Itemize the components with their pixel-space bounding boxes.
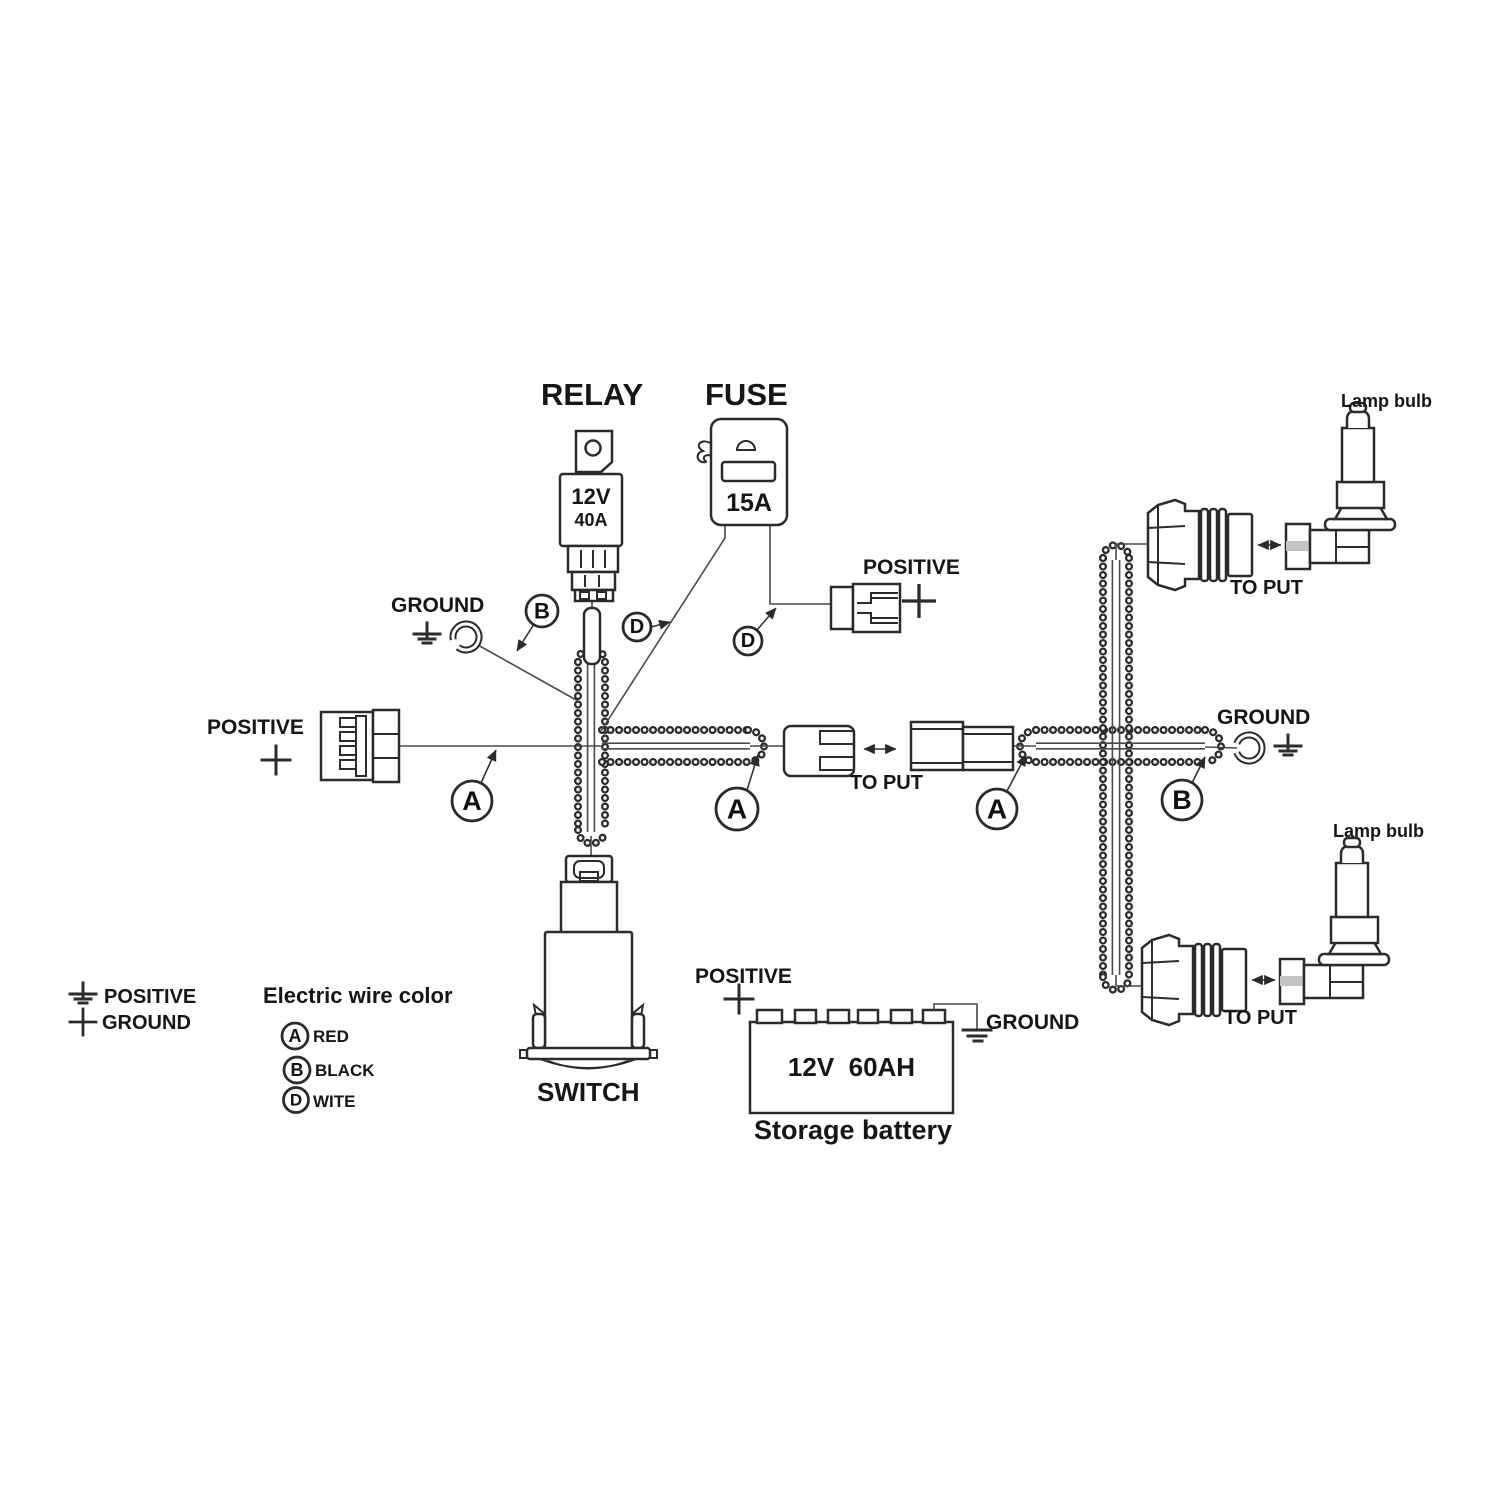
- wire-mark-d-right-letter: D: [741, 630, 755, 652]
- legend-title: Electric wire color: [263, 985, 453, 1007]
- to-put-label-bottom: TO PUT: [1224, 1008, 1297, 1028]
- relay-title: RELAY: [541, 379, 643, 410]
- diagram-artwork: A A A B B D D A B D: [0, 0, 1500, 1500]
- legend-color-wite: WITE: [313, 1093, 356, 1110]
- positive-label-left: POSITIVE: [207, 717, 304, 738]
- wire-mark-a-right-letter: A: [987, 794, 1007, 825]
- ground-label-relay: GROUND: [391, 595, 484, 616]
- battery-ground-label: GROUND: [986, 1012, 1079, 1033]
- positive-connector-left: [321, 710, 399, 782]
- lamp-bulb-label-top: Lamp bulb: [1341, 392, 1432, 410]
- harness-braid-center-horizontal: [602, 730, 764, 762]
- battery-name: Storage battery: [754, 1117, 952, 1144]
- wire-mark-a-middle-letter: A: [727, 794, 747, 825]
- legend-mark-d-letter: D: [290, 1091, 302, 1110]
- fuse-title: FUSE: [705, 379, 788, 410]
- to-put-label-middle: TO PUT: [850, 773, 923, 793]
- ground-symbol-right: [1275, 735, 1301, 755]
- relay-blade-hole: [586, 441, 601, 456]
- ground-label-right: GROUND: [1217, 707, 1310, 728]
- legend-mark-a-letter: A: [289, 1026, 302, 1046]
- legend-mark-b-letter: B: [291, 1060, 304, 1080]
- to-put-connector-middle: [784, 722, 1013, 776]
- relay-component: [560, 431, 622, 664]
- positive-connector-top-right: [831, 584, 900, 632]
- lamp-bulb-label-bottom: Lamp bulb: [1333, 822, 1424, 840]
- ground-terminal-left: [414, 619, 484, 654]
- legend-ground-symbol: [70, 1009, 96, 1035]
- wire-mark-d-left-letter: D: [630, 616, 644, 638]
- switch-label: SWITCH: [537, 1079, 640, 1105]
- fuse-current: 15A: [711, 491, 787, 516]
- fuse-window: [722, 462, 775, 481]
- wire-mark-b-relay-letter: B: [534, 599, 550, 624]
- battery-rating: 12V 60AH: [750, 1054, 953, 1080]
- fork-terminal-left: [449, 619, 484, 654]
- positive-symbol-top-right: [904, 586, 935, 617]
- legend-positive-label: POSITIVE: [104, 987, 196, 1007]
- harness-braid-right-vertical: [1103, 545, 1129, 990]
- relay-voltage: 12V: [560, 486, 622, 508]
- switch-component: [520, 856, 657, 1069]
- legend-ground-label: GROUND: [102, 1013, 191, 1033]
- to-put-label-top: TO PUT: [1230, 578, 1303, 598]
- lamp-socket-and-bulb-bottom: [1142, 838, 1389, 1025]
- wire-mark-a-left-letter: A: [462, 786, 482, 816]
- positive-symbol-left: [262, 746, 290, 774]
- relay-wire-boot: [584, 608, 600, 664]
- fork-terminal-right: [1237, 735, 1262, 761]
- positive-label-top-right: POSITIVE: [863, 557, 960, 578]
- wiring-diagram-canvas: A A A B B D D A B D RELAY FUSE 12V 40A 1…: [0, 0, 1500, 1500]
- ground-terminal-right: [1237, 735, 1301, 761]
- wire-mark-b-right-letter: B: [1172, 785, 1192, 815]
- battery-component: [725, 985, 991, 1113]
- legend-positive-symbol: [70, 983, 96, 1003]
- lamp-socket-and-bulb-top: [1148, 403, 1395, 590]
- ground-symbol-left: [414, 623, 440, 643]
- battery-positive-label: POSITIVE: [695, 966, 792, 987]
- battery-positive-symbol: [725, 985, 753, 1013]
- wire-mark-callouts: A A A B B D D: [452, 595, 1202, 830]
- relay-current: 40A: [560, 511, 622, 529]
- legend-color-red: RED: [313, 1028, 349, 1045]
- harness-braid-right-horizontal: [1020, 730, 1221, 762]
- legend-color-black: BLACK: [315, 1062, 375, 1079]
